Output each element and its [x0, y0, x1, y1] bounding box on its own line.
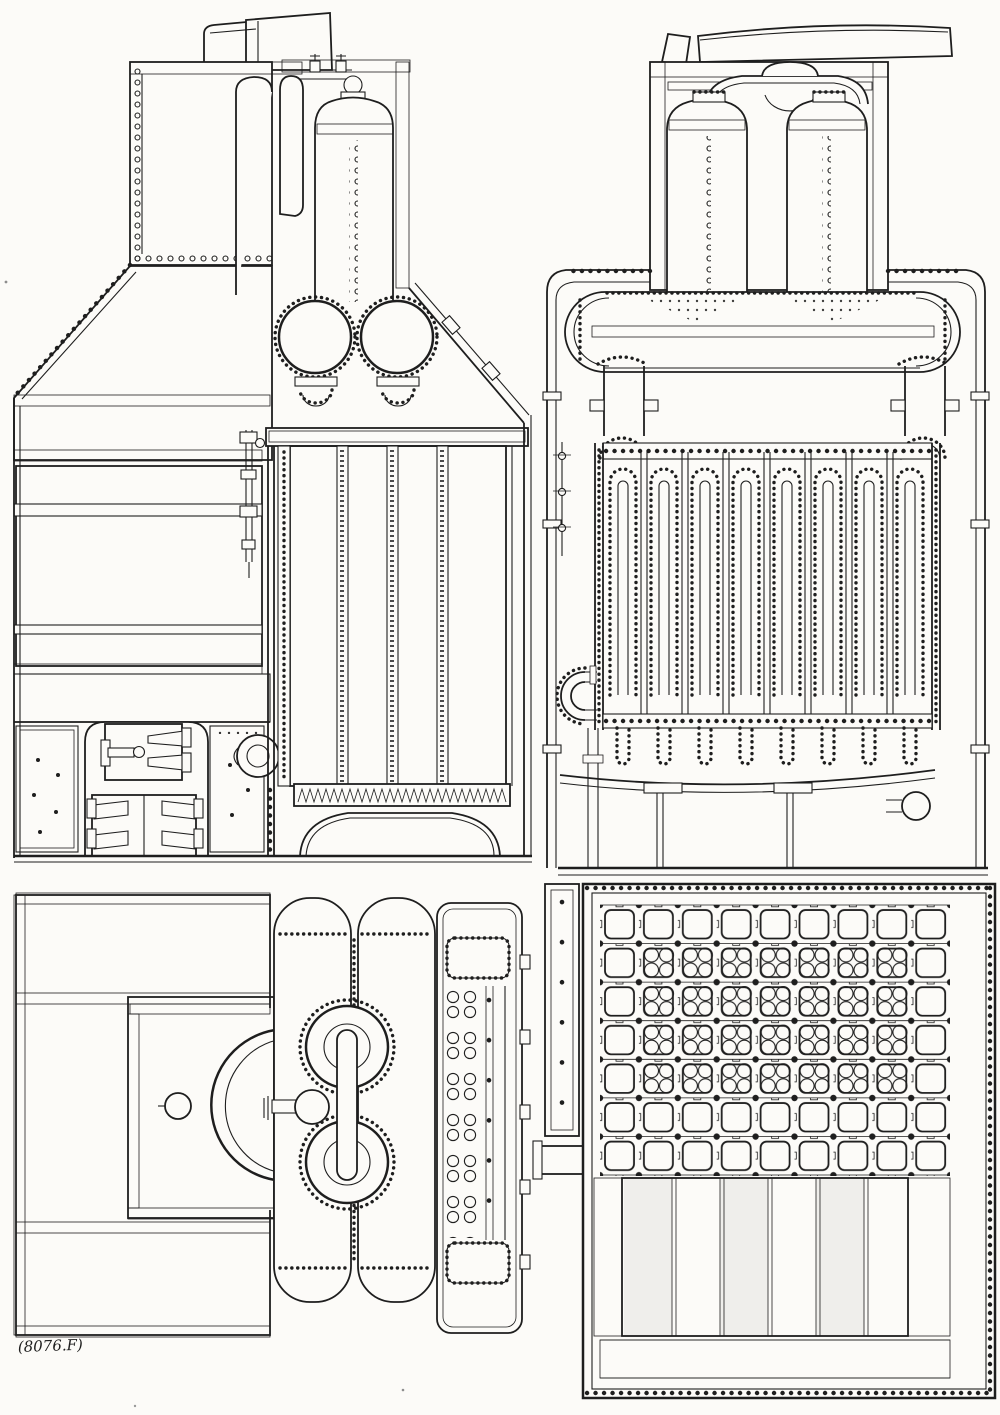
boiler-engraving-plate: (8076.F): [0, 0, 1000, 1415]
grate-and-arch: [270, 784, 510, 856]
tube-bank-side: [266, 428, 528, 786]
safety-valve-icon: [341, 76, 365, 100]
fire-door-lower: [87, 795, 203, 856]
chimney-base-icon: [662, 25, 952, 64]
plan-inner-panel: [128, 997, 274, 1219]
boiler-plan-section-icon: [533, 884, 995, 1398]
tube-bank-front: [595, 443, 940, 764]
plate-number-caption: (8076.F): [18, 1336, 84, 1356]
boiler-side-elevation-icon: [14, 13, 532, 862]
foundation: [558, 728, 988, 875]
field-tube-inner: [618, 481, 915, 695]
cross-drum: [565, 292, 960, 372]
field-tube-columns: [610, 469, 923, 695]
drum-neck-right: [377, 377, 419, 406]
firebox-front: [16, 722, 279, 856]
casing-hood-panel: [14, 265, 272, 461]
stay-cell-grid: [600, 905, 950, 1176]
return-bend-icon: [557, 666, 597, 724]
boiler-plan-top-icon: [14, 893, 530, 1337]
smokebox-casing: [130, 62, 302, 265]
boiler-front-section-icon: [543, 25, 989, 875]
plan-header-assembly: [437, 903, 530, 1333]
fire-door-upper: [101, 724, 191, 780]
louvre-grating: [14, 466, 262, 674]
drum-neck-left: [295, 377, 337, 406]
cross-drum-circles: [275, 297, 437, 406]
riveted-band: [14, 674, 270, 722]
stub-tubes: [617, 728, 916, 764]
